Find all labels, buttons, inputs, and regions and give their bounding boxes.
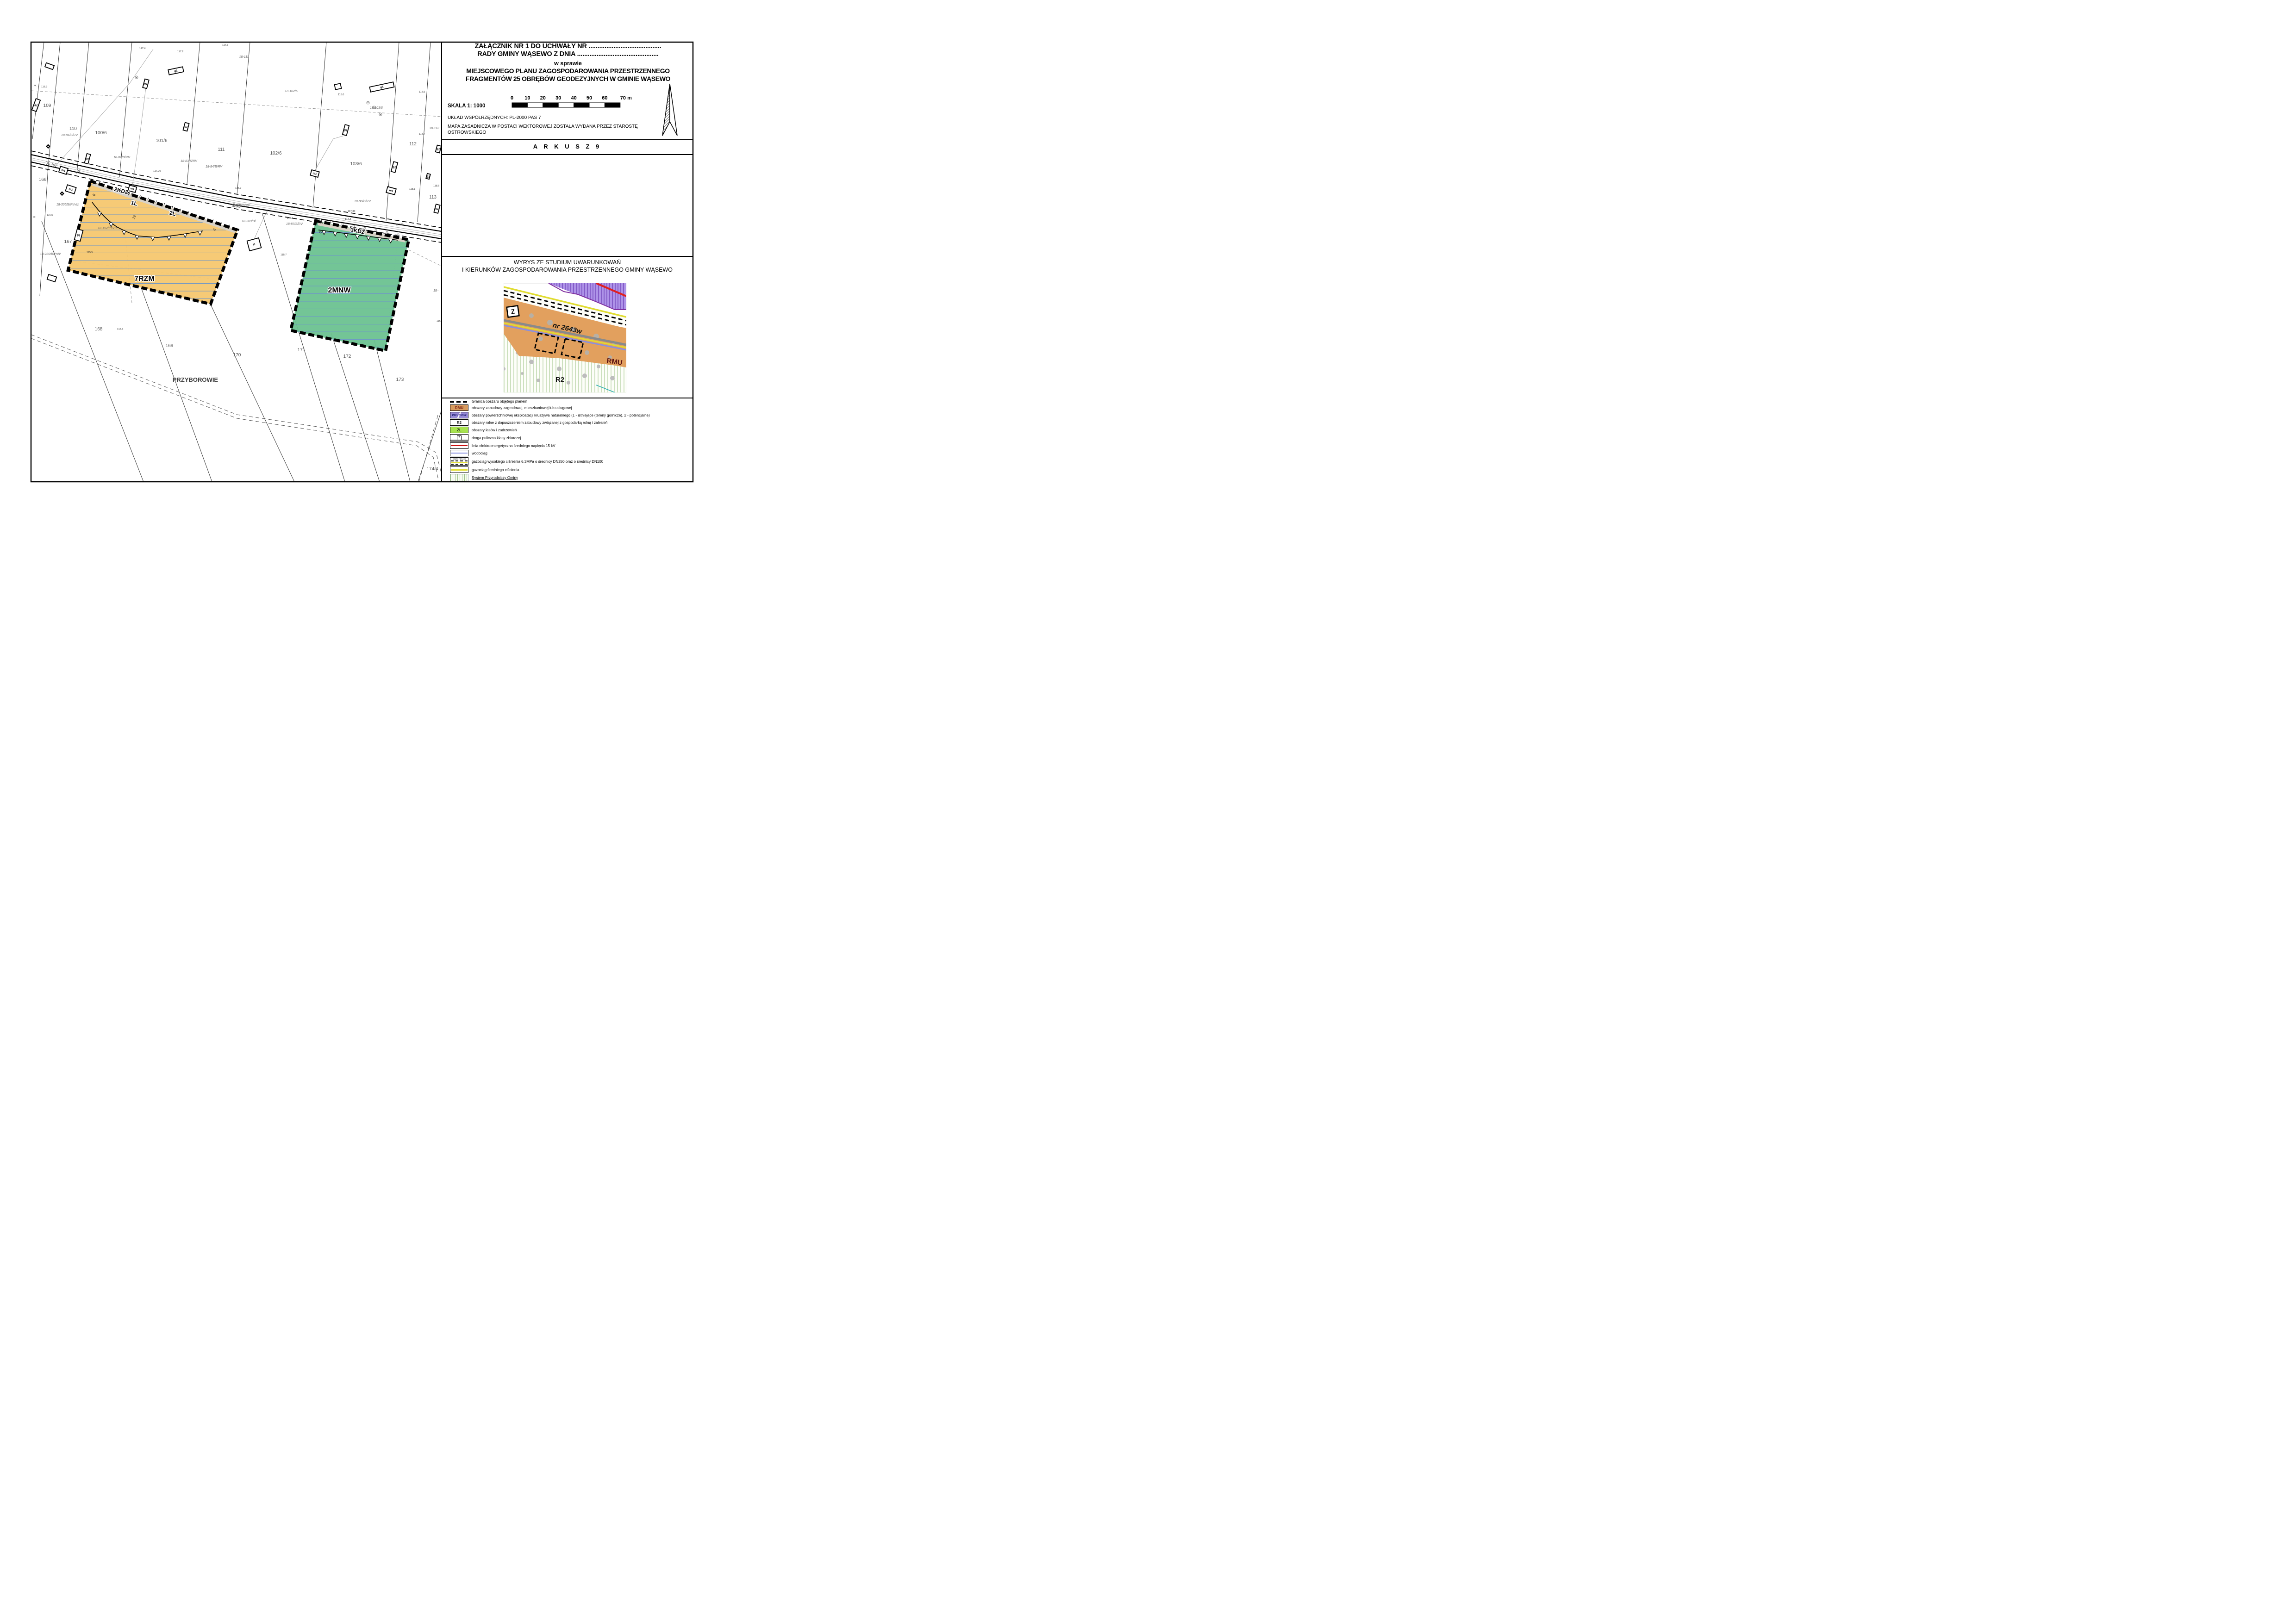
legend-label: obszary rolne z dopuszczeniem zabudowy z… (472, 421, 608, 425)
elevation-point: 118.5 (433, 185, 439, 187)
legend-symbol-pg: PG1 / PG2 (450, 412, 468, 418)
parcel-number: 111 (218, 147, 225, 152)
legend-row: R2obszary rolne z dopuszczeniem zabudowy… (450, 419, 692, 426)
legend-label: gazociąg wysokiego ciśnienia 6,3MPa o śr… (472, 460, 603, 464)
elevation-point: 117.30 (348, 210, 355, 213)
cadastral-code: 18-88/B/RV (354, 200, 371, 203)
legend-label: obszary lasów i zadrzewień (472, 428, 517, 432)
cadastral-code: 18-269/Bi (242, 220, 256, 223)
parcel-number: 110 (69, 126, 77, 131)
cadastral-code: 18-81/S/RV (61, 134, 78, 137)
cadastral-code: 18-112 (429, 127, 439, 130)
parcel-number: 112 (409, 142, 417, 147)
legend-symbol-road: Z (450, 434, 468, 442)
cadastral-code: 18-84/B/RV (206, 165, 223, 168)
elevation-point: 118.0 (338, 93, 344, 96)
zone-label: 2MNW (328, 286, 351, 294)
legend-row: ZLobszary lasów i zadrzewień (450, 427, 692, 433)
cadastral-code: 18-152/PsVIz (98, 227, 118, 230)
zone-label: PRZYBOROWIE (173, 376, 218, 383)
legend-label: obszary powierzchniowej eksploatacji kru… (472, 413, 650, 417)
title-line-5: FRAGMENTÓW 25 OBRĘBÓW GEODEZYJNYCH W GMI… (444, 75, 692, 83)
parcel-number: 103/6 (350, 162, 362, 167)
scale-tick: 40 (571, 95, 576, 101)
legend-label: System Przyrodniczy Gminy (472, 476, 518, 480)
wyrys-title: WYRYS ZE STUDIUM UWARUNKOWAŃ I KIERUNKÓW… (443, 259, 691, 274)
elevation-point: 117.4 (345, 218, 351, 221)
legend-symbol-line-thick (450, 466, 468, 473)
elevation-point: 118.5 (419, 91, 425, 93)
legend-label: Granica obszaru objętego planem (472, 399, 527, 404)
title-line-4: MIEJSCOWEGO PLANU ZAGOSPODAROWANIA PRZES… (444, 67, 692, 75)
elevation-point: 117.0 (287, 217, 293, 220)
parcel-number: 174/4 (426, 466, 438, 472)
legend: Granica obszaru objętego planemRMUobszar… (450, 399, 692, 482)
legend-row: wodociąg (450, 450, 692, 456)
wyrys-inset-map: Z nr 2643w RMU R2 (502, 283, 626, 392)
elevation-point: 115.7 (281, 254, 287, 256)
base-map-note-line2: OSTROWSKIEGO (448, 130, 679, 136)
elevation-point: 115.5 (87, 251, 93, 254)
elevation-point: 116.9 (235, 187, 241, 190)
base-map-note-line1: MAPA ZASADNICZA W POSTACI WEKTOROWEJ ZOS… (448, 124, 679, 130)
sheet-number: A R K U S Z 9 (442, 143, 693, 150)
building (334, 83, 341, 89)
elevation-point: 117.3 (222, 44, 228, 47)
elevation-point: 116.9 (41, 86, 47, 88)
legend-symbol-box: ZL (450, 427, 468, 433)
parcel-number: 167 (64, 239, 72, 244)
base-map-note: MAPA ZASADNICZA W POSTACI WEKTOROWEJ ZOS… (448, 124, 679, 136)
elevation-point: 115.3 (117, 328, 123, 331)
legend-row: linia elektroenergetyczna średniego napi… (450, 442, 692, 449)
legend-row: Granica obszaru objętego planem (450, 399, 692, 404)
coordinate-system-note: UKŁAD WSPÓŁRZĘDNYCH: PL-2000 PAS 7 (448, 115, 541, 120)
parcel-number: 173 (396, 377, 404, 382)
cadastral-code: 18-83/S/RV (181, 160, 198, 163)
legend-row: System Przyrodniczy Gminy (450, 474, 692, 481)
parcel-number: 109 (44, 103, 51, 108)
elevation-point: 117.30 (396, 224, 403, 226)
legend-symbol-hatch (450, 474, 468, 481)
legend-symbol-box: RMU (450, 404, 468, 411)
parcel-number: 101/6 (156, 138, 167, 143)
inset-r2-label: R2 (555, 376, 564, 384)
cadastral-code: 18-111 (239, 56, 249, 59)
inset-z-box: Z (507, 305, 519, 317)
parcel-number: 172 (343, 354, 351, 359)
parcel-number: 166 (39, 177, 47, 182)
legend-label: wodociąg (472, 451, 487, 455)
parcel-number: 168 (95, 327, 103, 332)
legend-symbol-box: R2 (450, 419, 468, 426)
wyrys-title-line2: I KIERUNKÓW ZAGOSPODAROWANIA PRZESTRZENN… (443, 267, 691, 274)
parcel-number: 170 (233, 353, 241, 358)
legend-label: droga puliczna klasy zbiorczej (472, 436, 521, 440)
legend-row: Zdroga puliczna klasy zbiorczej (450, 434, 692, 442)
elevation-point: 117.4 (139, 47, 145, 50)
scale-label: SKALA 1: 1000 (448, 103, 485, 109)
title-line-3: w sprawie (444, 60, 692, 67)
cadastral-code: 18-87/S/RV (286, 223, 303, 226)
svg-text:✶: ✶ (32, 215, 36, 219)
legend-row: RMUobszary zabudowy zagrodowej, mieszkan… (450, 404, 692, 411)
zone-label: 269 (232, 203, 241, 209)
svg-text:✶: ✶ (33, 83, 37, 88)
legend-symbol-line (450, 442, 468, 449)
parcel-number: 113 (429, 195, 437, 200)
zone-label: 7RZM (134, 275, 155, 283)
cadastral-code: 18-102/6 (285, 90, 298, 93)
parcel-number: 102/6 (270, 151, 281, 156)
cadastral-code: 18-103/6 (370, 106, 383, 110)
title-line-1: ZAŁĄCZNIK NR 1 DO UCHWAŁY NR ...........… (444, 43, 692, 50)
elevation-point: 117.2 (177, 50, 183, 53)
scale-tick: 10 (524, 95, 530, 101)
title-block: ZAŁĄCZNIK NR 1 DO UCHWAŁY NR ...........… (444, 43, 692, 82)
scale-tick: 50 (586, 95, 592, 101)
elevation-point: 116.5 (47, 214, 53, 217)
elevation-point: 117.3 (289, 206, 295, 209)
elevation-point: 118.1 (409, 188, 415, 191)
scale-tick: 30 (555, 95, 561, 101)
legend-label: gazociąg średniego ciśnienia (472, 468, 519, 472)
plan-sheet: ✶✶ (0, 0, 717, 507)
scale-tick: 70 m (620, 95, 632, 101)
wyrys-title-line1: WYRYS ZE STUDIUM UWARUNKOWAŃ (443, 259, 691, 267)
legend-row: gazociąg średniego ciśnienia (450, 466, 692, 473)
title-line-2: RADY GMINY WĄSEWO Z DNIA ...............… (444, 50, 692, 58)
parcel-number: 169 (166, 343, 174, 348)
scale-tick: 0 (511, 95, 513, 101)
elevation-point: 118.7 (419, 133, 425, 136)
cadastral-code: 18-280/B/PsIV (40, 253, 61, 256)
scale-tick: 60 (602, 95, 607, 101)
cadastral-code: 18– (433, 289, 439, 292)
elevation-point: 117.20 (153, 170, 161, 173)
legend-row: DN250 / DN100gazociąg wysokiego ciśnieni… (450, 457, 692, 466)
legend-symbol-granica (450, 401, 468, 403)
parcel-number: 100/6 (95, 131, 106, 136)
cadastral-code: 18-82/B/RV (113, 156, 131, 159)
cadastral-code: 18-305/B/PsVIz (56, 203, 79, 206)
parcel-number: 171 (298, 348, 306, 353)
legend-label: linia elektroenergetyczna średniego napi… (472, 444, 555, 448)
scale-tick: 20 (540, 95, 546, 101)
legend-row: PG1 / PG2obszary powierzchniowej eksploa… (450, 412, 692, 418)
legend-symbol-line (450, 450, 468, 456)
legend-symbol-gaz-w: DN250 / DN100 (450, 457, 468, 466)
legend-label: obszary zabudowy zagrodowej, mieszkaniow… (472, 406, 572, 410)
